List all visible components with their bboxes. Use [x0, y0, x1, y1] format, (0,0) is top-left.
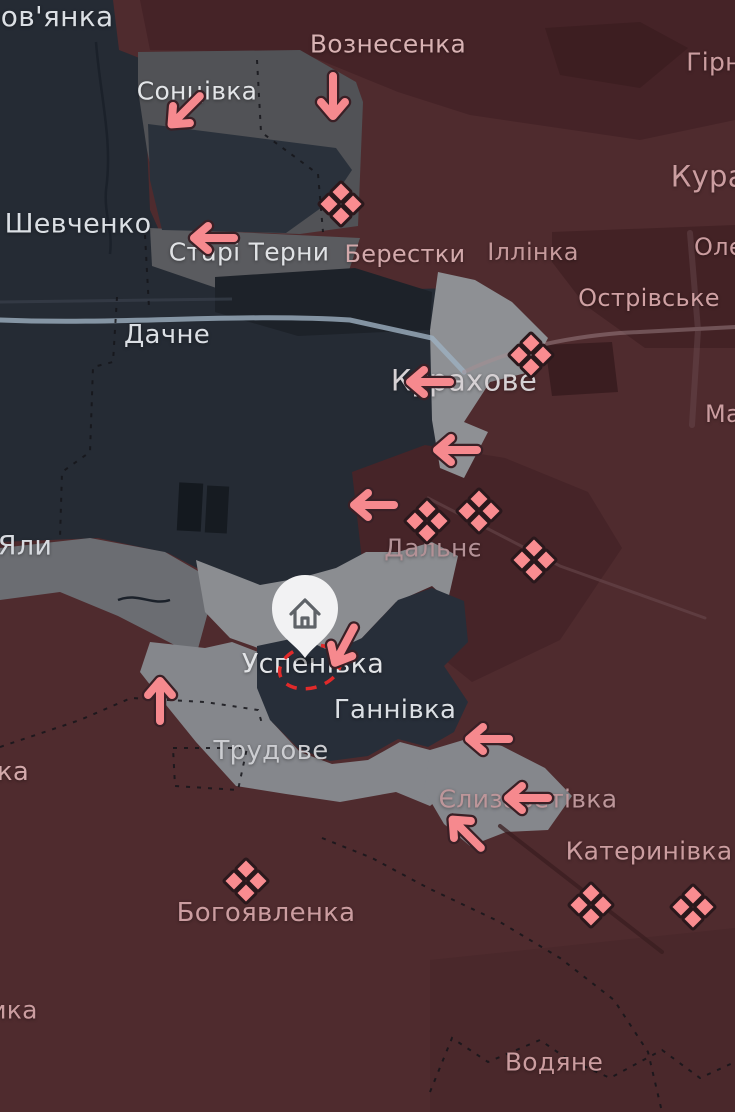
- clash-icon: [318, 181, 363, 226]
- advance-arrow-icon: [321, 76, 345, 116]
- advance-arrow-icon: [410, 370, 450, 394]
- markers-overlay: [0, 0, 735, 1112]
- clash-icon: [456, 488, 501, 533]
- advance-arrow-icon: [148, 681, 172, 721]
- clash-icon: [508, 332, 553, 377]
- advance-arrow-icon: [163, 88, 208, 133]
- advance-arrow-icon: [508, 786, 548, 810]
- clash-icon: [670, 884, 715, 929]
- advance-arrow-icon: [444, 811, 489, 856]
- advance-arrow-icon: [469, 727, 509, 751]
- advance-arrow-icon: [194, 226, 234, 250]
- advance-arrow-icon: [354, 493, 394, 517]
- clash-icon: [568, 882, 613, 927]
- advance-arrow-icon: [437, 438, 477, 462]
- clash-icon: [223, 858, 268, 903]
- map-viewport[interactable]: лов'янкаВознесенкаГірнСонцівкаКурахШевче…: [0, 0, 735, 1112]
- clash-icon: [511, 537, 556, 582]
- clash-icon: [404, 498, 449, 543]
